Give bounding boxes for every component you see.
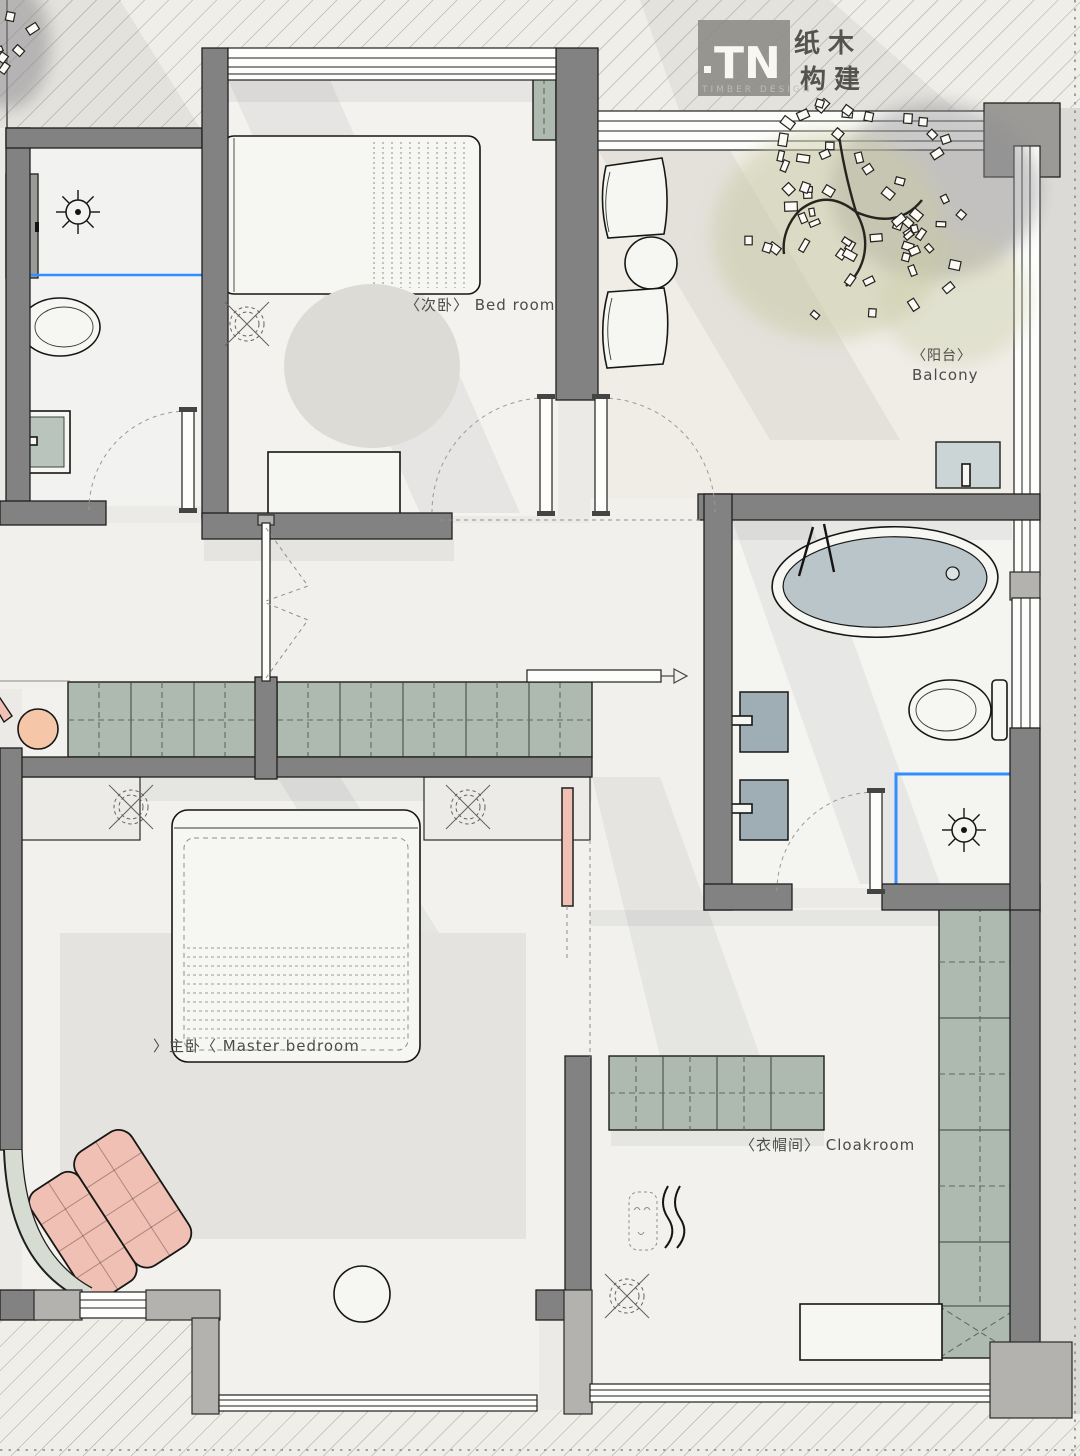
label-bedroom: 〈次卧〉 Bed room <box>405 296 555 314</box>
balcony-chair <box>603 288 668 368</box>
floor-plan-drawing: 〈次卧〉 Bed room 〈阳台〉 Balcony 〉主卧〈 Master b… <box>0 0 1080 1456</box>
entry-stool-peach <box>18 709 58 749</box>
shower-head-symbol <box>56 190 100 234</box>
wardrobe-master-right <box>277 682 592 757</box>
master-bed <box>172 810 420 1062</box>
exterior-right-strip <box>1040 108 1080 1414</box>
label-cloakroom: 〈衣帽间〉 Cloakroom <box>740 1136 915 1154</box>
cloakroom-bench <box>800 1304 942 1360</box>
cabinet-bedroom-corner <box>533 76 556 140</box>
label-balcony-en: Balcony <box>912 366 978 384</box>
cabinet-cloakroom-right <box>939 906 1021 1358</box>
entry-console <box>0 692 12 722</box>
bedroom-top-window <box>228 48 556 80</box>
floor-plan-canvas: 〈次卧〉 Bed room 〈阳台〉 Balcony 〉主卧〈 Master b… <box>0 0 1080 1456</box>
logo-cjk-2: 构建 <box>800 65 868 95</box>
bath-right-window <box>1012 598 1040 730</box>
bedroom-desk <box>268 452 400 514</box>
label-master-bedroom: 〉主卧〈 Master bedroom <box>153 1037 360 1055</box>
logo-subtext: TIMBER DESIGN <box>701 85 813 95</box>
balcony-chair <box>602 158 667 238</box>
column <box>990 1342 1072 1418</box>
logo-cjk-1: 纸木 <box>794 28 862 59</box>
shower-head-symbol <box>942 808 986 852</box>
logo-mark: TN <box>714 38 781 89</box>
side-table <box>334 1266 390 1322</box>
logo: TN TIMBER DESIGN 纸木 构建 <box>698 20 868 96</box>
toilet <box>909 680 1007 740</box>
bay-left-window <box>80 1292 148 1318</box>
nightstand-left <box>10 777 140 840</box>
balcony-table <box>625 237 677 289</box>
balcony-sink <box>936 442 1000 488</box>
cloakroom-window <box>590 1384 1012 1402</box>
label-balcony-cjk: 〈阳台〉 <box>912 348 972 364</box>
bedroom-bed <box>222 136 480 294</box>
wardrobe-master-left <box>68 682 256 757</box>
cabinet-cloakroom-top <box>609 1056 824 1130</box>
bay-window <box>219 1395 537 1411</box>
